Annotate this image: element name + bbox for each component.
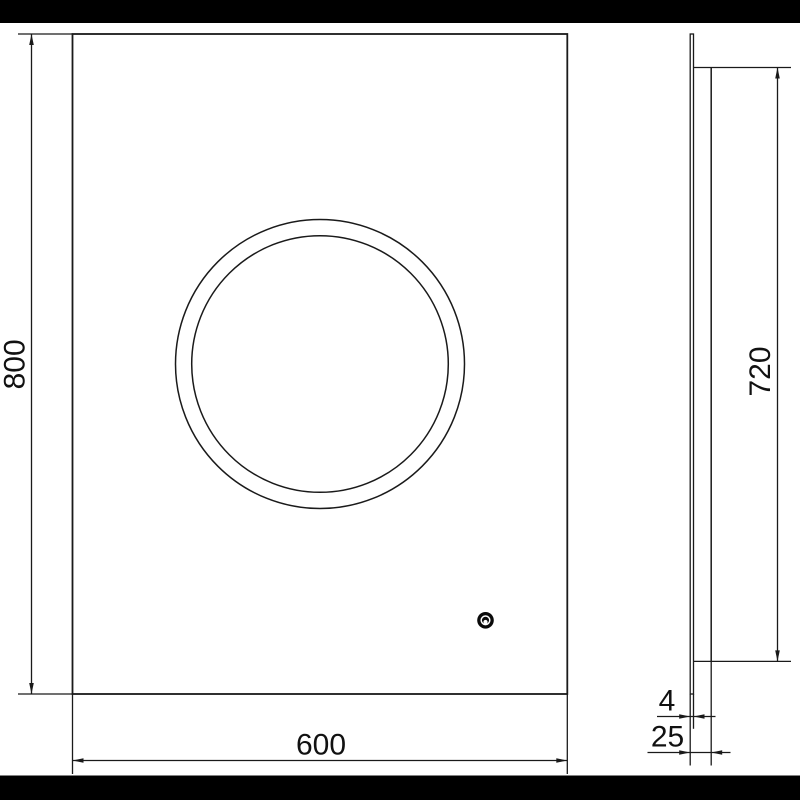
svg-text:4: 4 — [659, 684, 676, 717]
svg-text:720: 720 — [744, 346, 777, 396]
svg-text:800: 800 — [0, 339, 31, 389]
svg-text:600: 600 — [296, 729, 346, 762]
svg-text:25: 25 — [651, 720, 684, 753]
